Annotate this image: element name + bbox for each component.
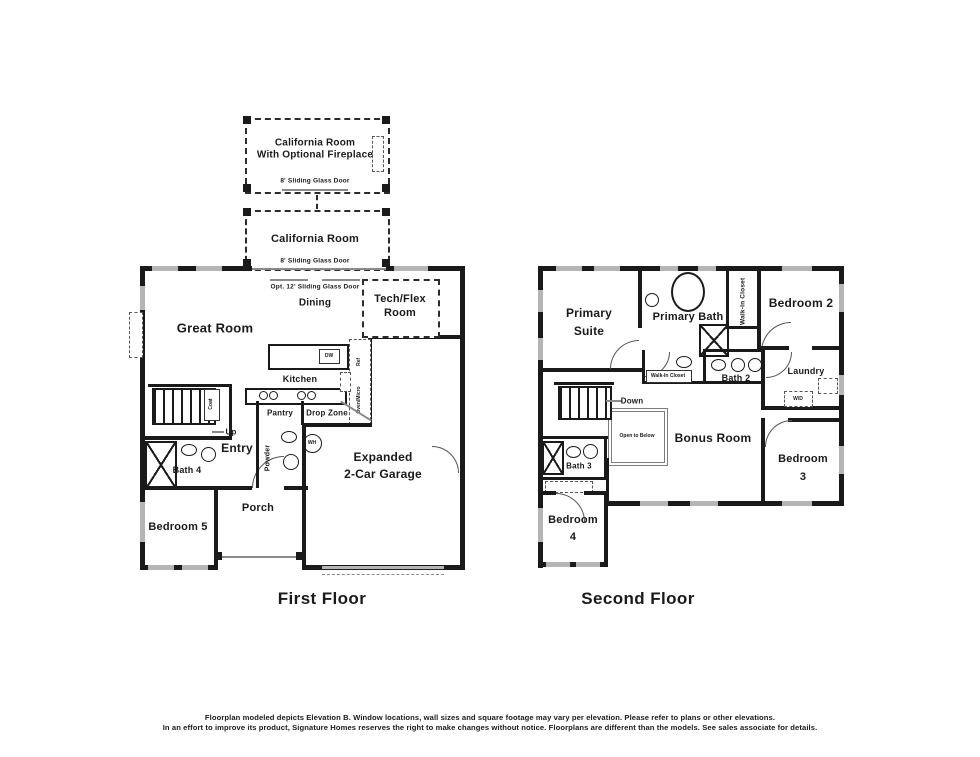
garage-label2: 2-Car Garage xyxy=(344,467,422,481)
door-arc xyxy=(432,446,459,473)
window xyxy=(152,266,178,271)
window xyxy=(148,565,174,570)
window xyxy=(594,266,620,271)
bath-4-label: Bath 4 xyxy=(173,465,202,475)
disclaimer: Floorplan modeled depicts Elevation B. W… xyxy=(0,712,980,733)
porch-post xyxy=(214,552,222,560)
bath-3-label: Bath 3 xyxy=(566,462,592,471)
door-arc xyxy=(765,420,792,447)
down-label: Down xyxy=(621,397,644,406)
window xyxy=(182,565,208,570)
sliding-door-line xyxy=(252,268,386,270)
sliding-glass-door-label: 8' Sliding Glass Door xyxy=(280,178,349,185)
second-floor-title: Second Floor xyxy=(581,589,694,609)
wall xyxy=(256,423,259,488)
wall xyxy=(538,436,608,439)
wall xyxy=(243,116,251,124)
wall xyxy=(554,382,614,385)
window xyxy=(839,375,844,395)
wall xyxy=(757,266,761,352)
wall xyxy=(703,349,759,352)
porch-edge xyxy=(216,556,304,558)
wall xyxy=(638,266,642,328)
walk-in-closet-small-label: Walk-In Closet xyxy=(651,373,685,379)
bedroom-4-label2: 4 xyxy=(570,531,576,543)
door-tick xyxy=(322,279,360,281)
wall xyxy=(302,423,306,570)
sink xyxy=(645,293,659,307)
window xyxy=(839,284,844,312)
wall xyxy=(256,401,259,425)
ref-label: Ref xyxy=(356,358,362,366)
bedroom-5-label: Bedroom 5 xyxy=(148,521,207,533)
door-arc xyxy=(610,340,639,369)
wall xyxy=(726,326,760,329)
wall xyxy=(302,423,372,427)
kitchen-label: Kitchen xyxy=(283,374,317,384)
walk-in-closet-label: Walk-In Closet xyxy=(740,269,747,325)
first-floor-title: First Floor xyxy=(278,589,366,609)
bathtub xyxy=(671,272,705,312)
sink xyxy=(283,454,299,470)
window xyxy=(698,266,716,271)
optional-fireplace xyxy=(129,312,143,358)
toilet xyxy=(711,359,726,371)
laundry-counter xyxy=(818,378,838,394)
window xyxy=(640,501,668,506)
disclaimer-line-2: In an effort to improve its product, Sig… xyxy=(0,723,980,732)
wall xyxy=(761,350,765,410)
wall xyxy=(382,184,390,192)
burner xyxy=(259,391,268,400)
optional-california-room-label2: With Optional Fireplace xyxy=(257,150,373,161)
bedroom-3-label2: 3 xyxy=(800,471,806,483)
window xyxy=(660,266,678,271)
bedroom-2-label: Bedroom 2 xyxy=(769,296,833,310)
garage-door-dash xyxy=(322,574,444,575)
connector-line xyxy=(316,195,318,209)
wall xyxy=(788,418,843,422)
toilet xyxy=(566,446,581,458)
window xyxy=(196,266,222,271)
optional-fireplace xyxy=(372,136,384,172)
sink xyxy=(201,447,216,462)
window xyxy=(394,266,428,271)
open-to-below-label: Open to Below xyxy=(620,433,655,439)
wall xyxy=(148,384,232,387)
window xyxy=(556,266,582,271)
wall xyxy=(604,436,607,480)
wall xyxy=(301,401,304,425)
burner xyxy=(269,391,278,400)
wall xyxy=(812,346,844,350)
toilet xyxy=(181,444,197,456)
window xyxy=(546,562,570,567)
wall xyxy=(584,491,606,495)
toilet xyxy=(676,356,692,368)
sink xyxy=(731,358,745,372)
bedroom-3-label: Bedroom xyxy=(778,453,828,465)
shower xyxy=(542,441,564,475)
dishwasher-label: DW xyxy=(325,353,333,359)
bedroom-4-label: Bedroom xyxy=(548,514,598,526)
label-leader xyxy=(606,400,622,402)
wall xyxy=(761,418,765,505)
sink xyxy=(748,358,762,372)
great-room-label: Great Room xyxy=(177,321,253,336)
primary-bath-label: Primary Bath xyxy=(653,311,724,323)
pantry-label: Pantry xyxy=(267,409,293,418)
wall xyxy=(140,486,252,490)
optional-california-room-label: California Room xyxy=(275,138,355,149)
toilet xyxy=(281,431,297,443)
burner xyxy=(307,391,316,400)
wall xyxy=(243,208,251,216)
powder-label: Powder xyxy=(265,445,272,471)
door-tick xyxy=(270,279,308,281)
burner xyxy=(297,391,306,400)
floorplan-canvas: California Room With Optional Fireplace … xyxy=(0,0,980,757)
wall xyxy=(140,436,232,440)
water-heater-label: WH xyxy=(308,440,316,446)
garage-door xyxy=(322,566,444,569)
sink xyxy=(583,444,598,459)
california-room-label: California Room xyxy=(271,233,359,245)
window xyxy=(538,508,543,542)
wall xyxy=(538,477,608,480)
sliding-door-line xyxy=(282,189,348,191)
bonus-room-label: Bonus Room xyxy=(675,431,752,445)
window xyxy=(576,562,600,567)
staircase-down xyxy=(558,386,612,420)
entry-label: Entry xyxy=(221,441,253,455)
window xyxy=(538,338,543,360)
label-leader xyxy=(212,431,224,433)
wall xyxy=(604,493,608,567)
bath-2-label: Bath 2 xyxy=(722,373,751,383)
counter-nib xyxy=(340,372,351,392)
wall xyxy=(703,349,706,384)
wall xyxy=(538,491,556,495)
wall xyxy=(382,116,390,124)
window xyxy=(839,446,844,474)
window xyxy=(782,266,812,271)
primary-suite-label2: Suite xyxy=(574,324,604,338)
wall xyxy=(726,266,729,328)
washer-dryer-label: W/D xyxy=(793,396,803,402)
window xyxy=(782,501,812,506)
wall xyxy=(382,208,390,216)
wall xyxy=(243,184,251,192)
window xyxy=(538,290,543,312)
sliding-glass-door-label: 8' Sliding Glass Door xyxy=(280,258,349,265)
window xyxy=(140,286,145,310)
dining-label: Dining xyxy=(299,298,331,309)
laundry-label: Laundry xyxy=(788,366,825,376)
window xyxy=(690,501,718,506)
primary-suite-label: Primary xyxy=(566,306,612,320)
garage-label: Expanded xyxy=(354,450,413,464)
drop-zone-label: Drop Zone xyxy=(306,409,348,418)
coat-closet-label: Coat xyxy=(208,398,214,409)
porch-label: Porch xyxy=(242,502,274,514)
wall xyxy=(460,266,465,570)
tech-flex-label: Tech/Flex xyxy=(374,293,426,305)
opt-sliding-door-label: Opt. 12' Sliding Glass Door xyxy=(271,284,360,291)
tech-flex-label2: Room xyxy=(384,307,416,319)
window xyxy=(140,502,145,542)
disclaimer-line-1: Floorplan modeled depicts Elevation B. W… xyxy=(0,713,980,722)
